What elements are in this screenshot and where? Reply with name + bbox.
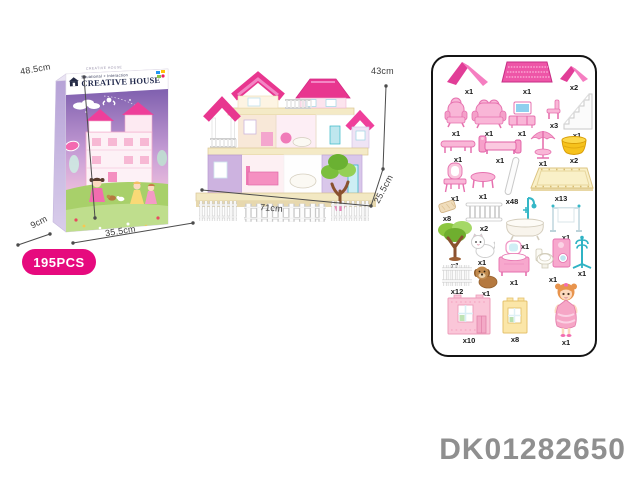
dressing-table-icon [442, 162, 468, 194]
parasol-table-icon [529, 127, 557, 159]
product-code: DK01282650 [439, 433, 626, 467]
part-yellow-wall-panel: x8 [501, 297, 529, 344]
floor-panel-icon [527, 165, 595, 194]
cat-icon [469, 233, 495, 258]
toilet-washer-icon [533, 237, 573, 275]
part-qty: x1 [465, 88, 473, 96]
part-qty: x10 [463, 337, 476, 345]
part-qty: x13 [555, 195, 568, 203]
small-gable-roof-icon [557, 63, 591, 83]
part-qty: x1 [562, 339, 570, 347]
part-large-gable-roof: x1 [443, 59, 495, 96]
long-table-icon [439, 137, 477, 155]
part-parasol-table: x1 [529, 127, 557, 168]
large-gable-roof-icon [443, 59, 495, 87]
part-toilet-washer: x1 [533, 237, 573, 284]
part-dressing-table: x1 [442, 162, 468, 203]
part-doll: x1 [550, 282, 582, 347]
product-box-graphic [53, 69, 168, 232]
part-sofa: x1 [471, 99, 507, 138]
part-roof-panel: x1 [499, 59, 555, 96]
part-qty: x1 [523, 88, 531, 96]
part-staircase: x1 [561, 91, 593, 140]
bathtub-shower-icon [503, 196, 547, 242]
house-logo-icon [68, 77, 79, 87]
part-round-table: x1 [469, 171, 497, 201]
cushion-icon [437, 199, 457, 214]
towel-rack-icon [549, 203, 583, 233]
coat-rack-icon [569, 235, 595, 269]
sofa-icon [471, 99, 507, 129]
pillar-icon [498, 157, 526, 197]
part-pink-wall-panel: x10 [446, 294, 492, 345]
part-wash-basin: x1 [496, 240, 532, 287]
part-qty: x1 [510, 279, 518, 287]
tv-cabinet-icon [507, 101, 537, 129]
part-cat: x1 [469, 233, 495, 267]
dog-icon [473, 264, 499, 289]
yellow-wall-panel-icon [501, 297, 529, 335]
part-qty: x2 [480, 225, 488, 233]
part-qty: x8 [511, 336, 519, 344]
part-small-gable-roof: x2 [557, 63, 591, 92]
dollhouse-graphic [196, 77, 376, 222]
part-qty: x1 [578, 270, 586, 278]
staircase-icon [561, 91, 593, 131]
part-qty: x2 [570, 157, 578, 165]
part-long-table: x1 [439, 137, 477, 164]
armchair-icon [443, 97, 469, 129]
part-coat-rack: x1 [569, 235, 595, 278]
part-basket: x2 [559, 135, 589, 165]
parts-panel: x1 x1 x2 x1 [431, 55, 597, 357]
house-height-label: 43cm [371, 66, 394, 76]
doll-icon [550, 282, 582, 338]
brand-logo-icon [156, 70, 165, 78]
picket-fence-icon [440, 264, 474, 287]
bed-icon [477, 134, 523, 156]
product-sheet: CREATIVE HOUSE Situational + Interaction… [0, 0, 640, 480]
part-picket-fence: x12 [440, 264, 474, 296]
part-qty: x1 [479, 193, 487, 201]
round-table-icon [469, 171, 497, 192]
pink-wall-panel-icon [446, 294, 492, 336]
house-width-label: 71cm [260, 202, 284, 214]
part-dog: x1 [473, 264, 499, 298]
part-armchair: x1 [443, 97, 469, 138]
basket-icon [559, 135, 589, 156]
pieces-badge: 195PCS [22, 249, 96, 275]
roof-panel-icon [499, 59, 555, 87]
wash-basin-icon [496, 240, 532, 278]
